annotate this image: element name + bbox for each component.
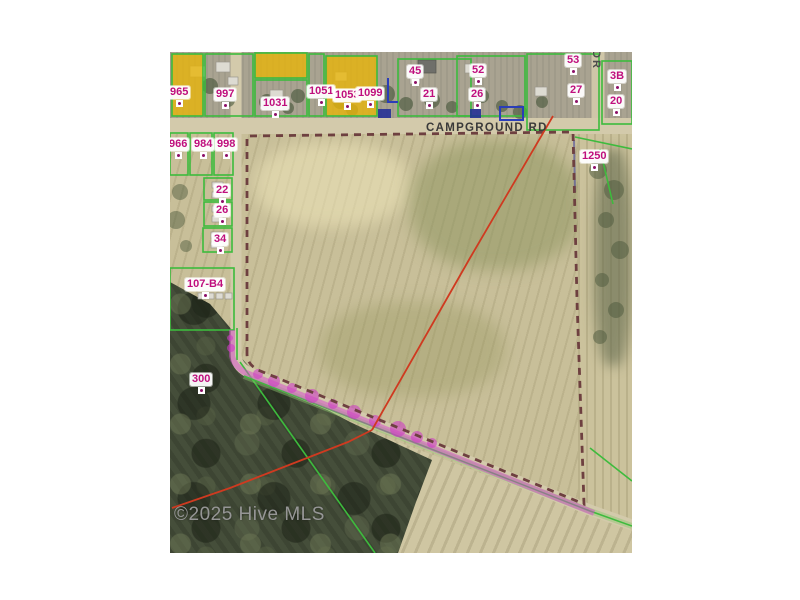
parcel-marker-dot — [570, 68, 577, 75]
parcel-label-text: 45 — [407, 65, 423, 78]
parcel-label-text: 107-B4 — [185, 278, 225, 291]
parcel-label-45: 45 — [407, 65, 423, 86]
parcel-marker-dot — [175, 152, 182, 159]
subject-boundary-dashed — [247, 132, 584, 504]
parcel-marker-dot — [474, 102, 481, 109]
parcel-label-27: 27 — [568, 84, 584, 105]
parcel-label-text: 53 — [565, 54, 581, 67]
parcel-label-1250: 1250 — [580, 150, 608, 171]
parcel-overlay-graphics — [170, 52, 632, 553]
listing-photo-page: 965 997 1031 1051 1053 1099 45 21 52 26 … — [0, 0, 800, 600]
parcel-label-21: 21 — [421, 88, 437, 109]
parcel-label-text: 21 — [421, 88, 437, 101]
parcel-marker-dot — [475, 78, 482, 85]
parcel-label-300: 300 — [190, 373, 212, 394]
parcel-label-107-B4: 107-B4 — [185, 278, 225, 299]
parcel-label-1051: 1051 — [307, 85, 335, 106]
parcel-label-965: 965 — [170, 86, 190, 107]
parcel-label-text: 20 — [608, 95, 624, 108]
parcel-label-998: 998 — [215, 138, 237, 159]
parcel-marker-dot — [344, 103, 351, 110]
parcel-label-1031: 1031 — [261, 97, 289, 118]
parcel-marker-dot — [198, 387, 205, 394]
mls-watermark: ©2025 Hive MLS — [174, 504, 325, 526]
parcel-marker-dot — [614, 84, 621, 91]
parcel-marker-dot — [176, 100, 183, 107]
parcel-marker-dot — [591, 164, 598, 171]
parcel-marker-dot — [412, 79, 419, 86]
parcel-marker-dot — [200, 152, 207, 159]
parcel-label-text: 52 — [470, 64, 486, 77]
parcel-label-text: 34 — [212, 233, 228, 246]
parcel-marker-dot — [367, 101, 374, 108]
parcel-label-text: 965 — [170, 86, 190, 99]
parcel-label-26-west: 26 — [214, 204, 230, 225]
blue-feature — [378, 109, 391, 118]
aerial-map-image[interactable]: 965 997 1031 1051 1053 1099 45 21 52 26 … — [170, 52, 632, 553]
parcel-marker-dot — [318, 99, 325, 106]
parcel-label-text: 966 — [170, 138, 189, 151]
parcel-marker-dot — [219, 218, 226, 225]
parcel-marker-dot — [222, 102, 229, 109]
parcel-marker-dot — [426, 102, 433, 109]
blue-feature — [470, 109, 481, 118]
parcel-marker-dot — [202, 292, 209, 299]
parcel-label-text: 26 — [469, 88, 485, 101]
parcel-marker-dot — [217, 247, 224, 254]
parcel-label-text: 1250 — [580, 150, 608, 163]
campground-rd-label: CAMPGROUND RD — [426, 122, 548, 134]
parcel-label-52: 52 — [470, 64, 486, 85]
parcel-label-text: 1099 — [356, 87, 384, 100]
parcel-label-1099: 1099 — [356, 87, 384, 108]
parcel-label-text: 3B — [608, 70, 626, 83]
parcel-label-text: 27 — [568, 84, 584, 97]
parcel-label-984: 984 — [192, 138, 214, 159]
parcel-marker-dot — [272, 111, 279, 118]
side-road-label: DR — [590, 52, 602, 98]
parcel-label-text: 1031 — [261, 97, 289, 110]
parcel-label-22: 22 — [214, 184, 230, 205]
parcel-marker-dot — [223, 152, 230, 159]
parcel-label-text: 22 — [214, 184, 230, 197]
parcel-label-text: 984 — [192, 138, 214, 151]
parcel-label-3B: 3B — [608, 70, 626, 91]
parcel-marker-dot — [573, 98, 580, 105]
parcel-label-34: 34 — [212, 233, 228, 254]
west-shrubs — [170, 184, 192, 252]
parcel-marker-dot — [613, 109, 620, 116]
parcel-label-text: 300 — [190, 373, 212, 386]
parcel-label-997: 997 — [214, 88, 236, 109]
parcel-label-20: 20 — [608, 95, 624, 116]
parcel-label-966: 966 — [170, 138, 189, 159]
parcel-label-53: 53 — [565, 54, 581, 75]
parcel-label-text: 997 — [214, 88, 236, 101]
parcel-label-text: 1051 — [307, 85, 335, 98]
parcel-label-26-north: 26 — [469, 88, 485, 109]
parcel-label-text: 26 — [214, 204, 230, 217]
parcel-label-text: 998 — [215, 138, 237, 151]
